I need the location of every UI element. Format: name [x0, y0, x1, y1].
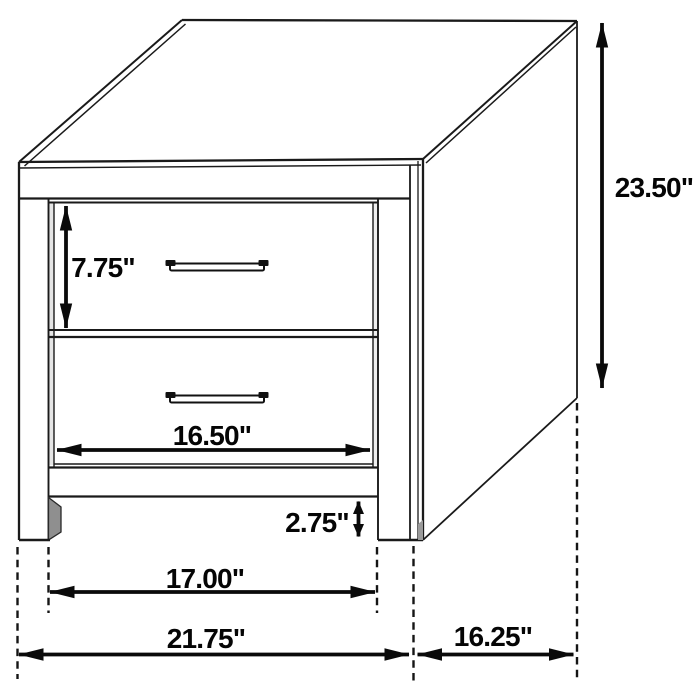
tabletop-front-bevel [19, 165, 421, 168]
drawer2-handle-bar [170, 396, 264, 403]
drawer2-handle-left-post [166, 392, 176, 398]
label-overall-width: 21.75" [167, 623, 246, 654]
label-drawer-height: 7.75" [71, 252, 135, 283]
dimension-leg-inner-span: 17.00" [50, 563, 375, 594]
dimensions: 7.75" 23.50" 16.50" 2.75" 17.00" 21.75" … [19, 23, 693, 655]
drawer2-handle [166, 392, 269, 403]
tabletop-back-edge [182, 20, 577, 21]
drawer1-handle-left-post [166, 260, 176, 266]
dimension-drawer-height: 7.75" [66, 206, 135, 328]
side-panel-bottom-edge [423, 398, 577, 540]
drawer2-handle-right-post [259, 392, 269, 398]
label-drawer-width: 16.50" [173, 420, 252, 451]
drawer1-handle-bar [170, 264, 264, 271]
face-frame [19, 162, 410, 540]
dimension-drawer-width: 16.50" [57, 420, 370, 451]
label-depth: 16.25" [454, 621, 533, 652]
tabletop-right-edge-inner [426, 27, 576, 163]
label-overall-height: 23.50" [615, 172, 694, 203]
dimension-overall-width: 21.75" [19, 623, 409, 655]
dimension-base-clearance: 2.75" [285, 502, 358, 539]
dimension-depth: 16.25" [418, 621, 574, 655]
legs [19, 498, 423, 541]
diagram-canvas: 7.75" 23.50" 16.50" 2.75" 17.00" 21.75" … [0, 0, 700, 700]
tabletop [19, 20, 577, 168]
right-leg-corner-shadow [418, 520, 423, 540]
tabletop-right-edge-outer [423, 21, 577, 159]
tabletop-left-edge-inner [25, 24, 186, 166]
label-base-clearance: 2.75" [285, 507, 349, 538]
drawer1-handle [166, 260, 269, 271]
tabletop-left-edge-outer [19, 20, 182, 162]
tabletop-front-edge [19, 159, 423, 162]
drawer1-handle-right-post [259, 260, 269, 266]
label-leg-inner-span: 17.00" [166, 563, 245, 594]
nightstand-dimension-diagram: 7.75" 23.50" 16.50" 2.75" 17.00" 21.75" … [0, 0, 700, 700]
dimension-overall-height: 23.50" [602, 23, 693, 388]
left-leg-side-face [49, 498, 62, 541]
